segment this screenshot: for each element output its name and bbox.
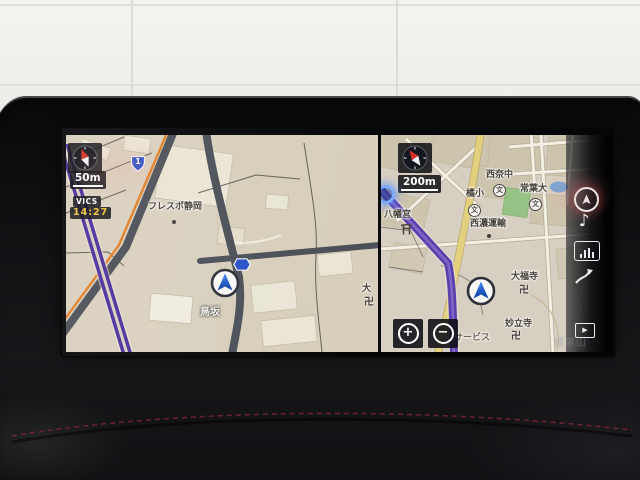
current-position-marker-right [466,276,496,306]
poi-label-temple-partial: 大 [362,285,371,294]
map-panel-left[interactable]: 50m VICS 14:27 1 フレスポ静岡 鳥坂 大 卍 [66,135,378,352]
poi-label-tachibana: 橘小 [466,190,484,199]
school-icon: 文 [529,198,542,211]
scale-button-right[interactable]: 200m [398,175,441,193]
compass-button[interactable] [68,143,102,173]
poi-dot [487,234,491,238]
equalizer-icon [574,241,600,261]
zoom-in-button[interactable]: + [393,319,423,348]
route-arrow-icon [574,267,594,285]
vics-time: 14:27 [70,207,111,219]
scale-button-left[interactable]: 50m [70,171,106,189]
left-map-canvas [66,135,378,352]
poi-dot [172,220,176,224]
compass-icon [72,145,98,171]
navigation-screen: 50m VICS 14:27 1 フレスポ静岡 鳥坂 大 卍 [62,128,614,356]
torii-icon [400,223,413,235]
route-shield-national-1: 1 [130,155,146,172]
compass-button[interactable] [398,143,432,173]
dashboard-photo: 50m VICS 14:27 1 フレスポ静岡 鳥坂 大 卍 [0,0,640,480]
poi-label-nishina: 西奈中 [486,171,513,180]
manji-symbol: 卍 [511,332,521,342]
compass-icon [402,145,428,171]
current-position-marker-left [210,268,240,298]
scale-label: 200m [401,176,438,191]
current-position-icon [574,187,599,212]
manji-symbol: 卍 [364,298,374,308]
plus-icon: + [398,323,419,344]
tile-grout-line [396,0,398,110]
poi-label-torisaka: 鳥坂 [200,308,220,318]
poi-label-myoryuji: 妙立寺 [505,320,532,329]
zoom-out-button[interactable]: − [428,319,458,348]
tile-grout-line [0,4,640,6]
ghost-reflection-text: 榎原山 [554,334,587,349]
current-position-button[interactable] [572,187,596,212]
poi-label-frespo: フレスポ静岡 [148,203,202,212]
poi-label-seino: 西濃運輸 [470,220,506,229]
tile-grout-line [131,0,133,110]
manji-symbol: 卍 [519,286,529,296]
minus-icon: − [433,323,454,344]
menu-sidebar: ♪ ▶ [566,135,614,352]
audio-button[interactable]: ♪ [572,213,596,230]
school-icon: 文 [468,204,481,217]
music-note-icon: ♪ [579,211,590,231]
dashboard-stitching [0,390,640,480]
school-icon: 文 [493,184,506,197]
poi-label-service: サービス [454,334,490,343]
tile-grout-line [0,84,640,86]
poi-label-tokoha: 常葉大 [520,185,547,194]
equalizer-button[interactable] [572,241,596,261]
vics-badge: VICS [73,196,101,207]
poi-label-hachimangu: 八幡宮 [384,211,411,220]
route-info-button[interactable] [572,267,596,289]
scale-label: 50m [73,172,103,187]
poi-label-daifukuji: 大福寺 [511,273,538,282]
